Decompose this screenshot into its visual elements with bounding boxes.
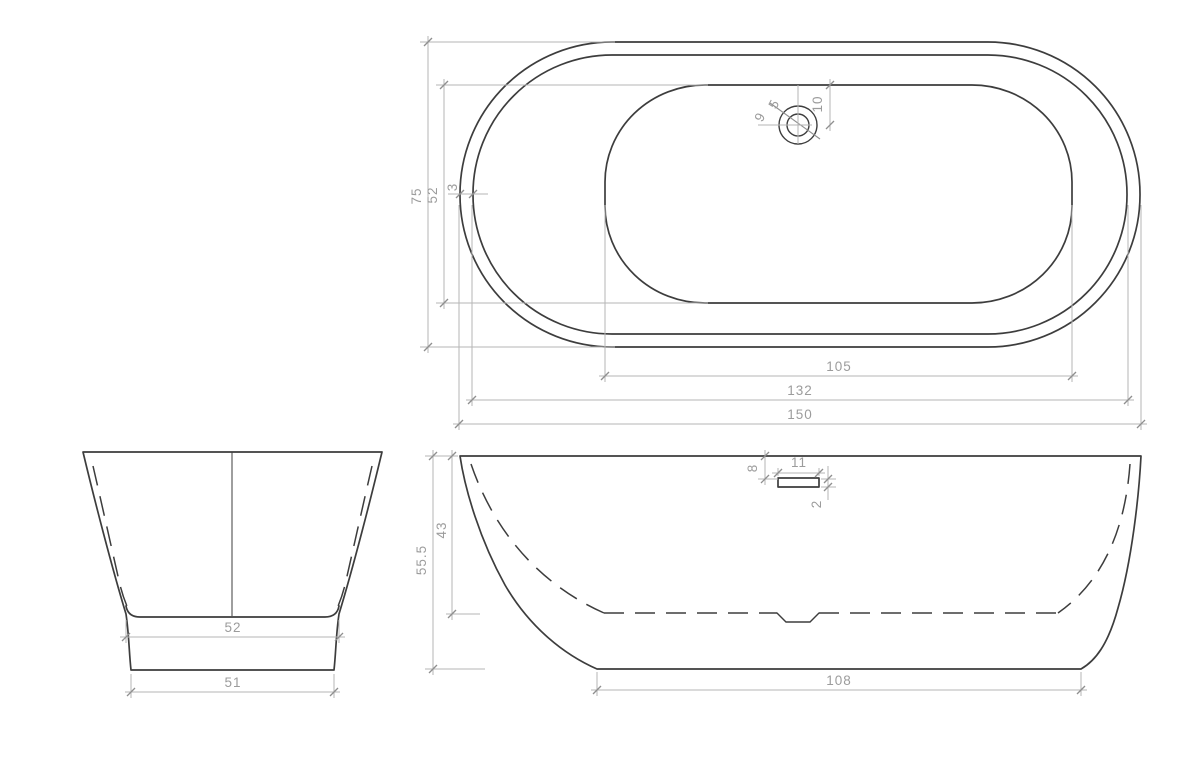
dim-overflow-thickness: 2: [809, 500, 824, 509]
side-view-silhouette: [460, 456, 1141, 669]
front-view: 52 51: [83, 452, 382, 698]
front-view-inner-wall-right: [336, 466, 372, 611]
top-view-dimensions: 75 52 3 10 9 5: [409, 36, 1147, 430]
dim-overflow-width: 11: [791, 455, 807, 470]
front-view-inner-wall-left: [93, 466, 129, 611]
side-view-inner-wall-right: [1058, 464, 1130, 613]
dim-bowl-width: 52: [425, 186, 440, 203]
dim-drain-offset: 10: [810, 95, 825, 112]
dim-rim-length: 132: [787, 383, 813, 398]
top-view-outer-rim-outline: [460, 42, 1140, 347]
side-view-dimensions: 55.5 43 8 11 2: [414, 450, 1087, 696]
top-view-bowl-outline: [605, 85, 1072, 303]
top-view: 75 52 3 10 9 5: [409, 36, 1147, 430]
technical-drawing-canvas: 75 52 3 10 9 5: [0, 0, 1200, 778]
side-view-drain-recess: [777, 613, 819, 622]
dim-drain-outer-diameter: 9: [751, 110, 768, 125]
side-view: 55.5 43 8 11 2: [414, 450, 1141, 696]
front-view-dimensions: 52 51: [120, 620, 345, 698]
dim-base-width: 51: [224, 675, 241, 690]
dim-overflow-offset: 8: [745, 464, 760, 473]
dim-base-length: 108: [826, 673, 852, 688]
dim-drain-inner-diameter: 5: [765, 97, 782, 112]
dim-overall-width: 75: [409, 187, 424, 204]
dim-inner-depth: 43: [434, 521, 449, 538]
dim-rim-thickness: 3: [445, 183, 460, 192]
dim-bowl-length: 105: [826, 359, 852, 374]
top-view-inner-rim-outline: [473, 55, 1127, 334]
dim-inner-bottom-width: 52: [224, 620, 241, 635]
dim-overall-height: 55.5: [414, 545, 429, 575]
side-view-inner-wall-left: [471, 464, 604, 613]
overflow-slot: [778, 478, 819, 487]
dim-overall-length: 150: [787, 407, 813, 422]
drain-icon: [758, 85, 820, 144]
